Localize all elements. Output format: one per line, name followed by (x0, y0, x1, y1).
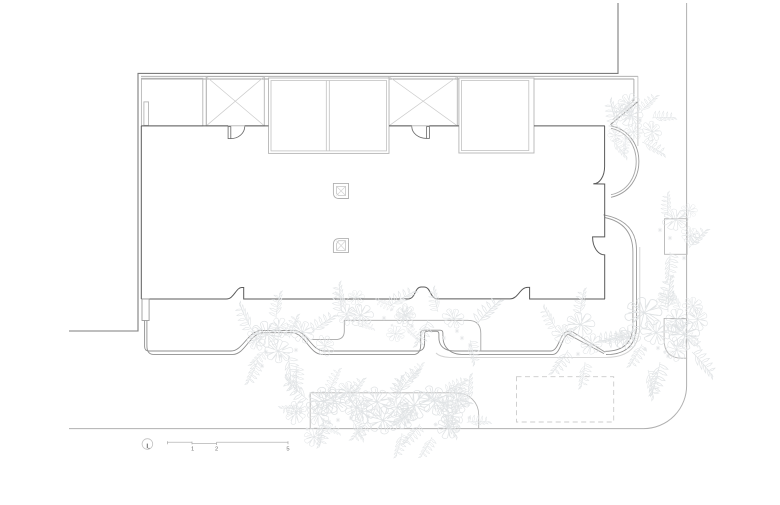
svg-text:5: 5 (286, 447, 289, 453)
svg-text:2: 2 (215, 447, 218, 453)
svg-text:1: 1 (191, 447, 194, 453)
